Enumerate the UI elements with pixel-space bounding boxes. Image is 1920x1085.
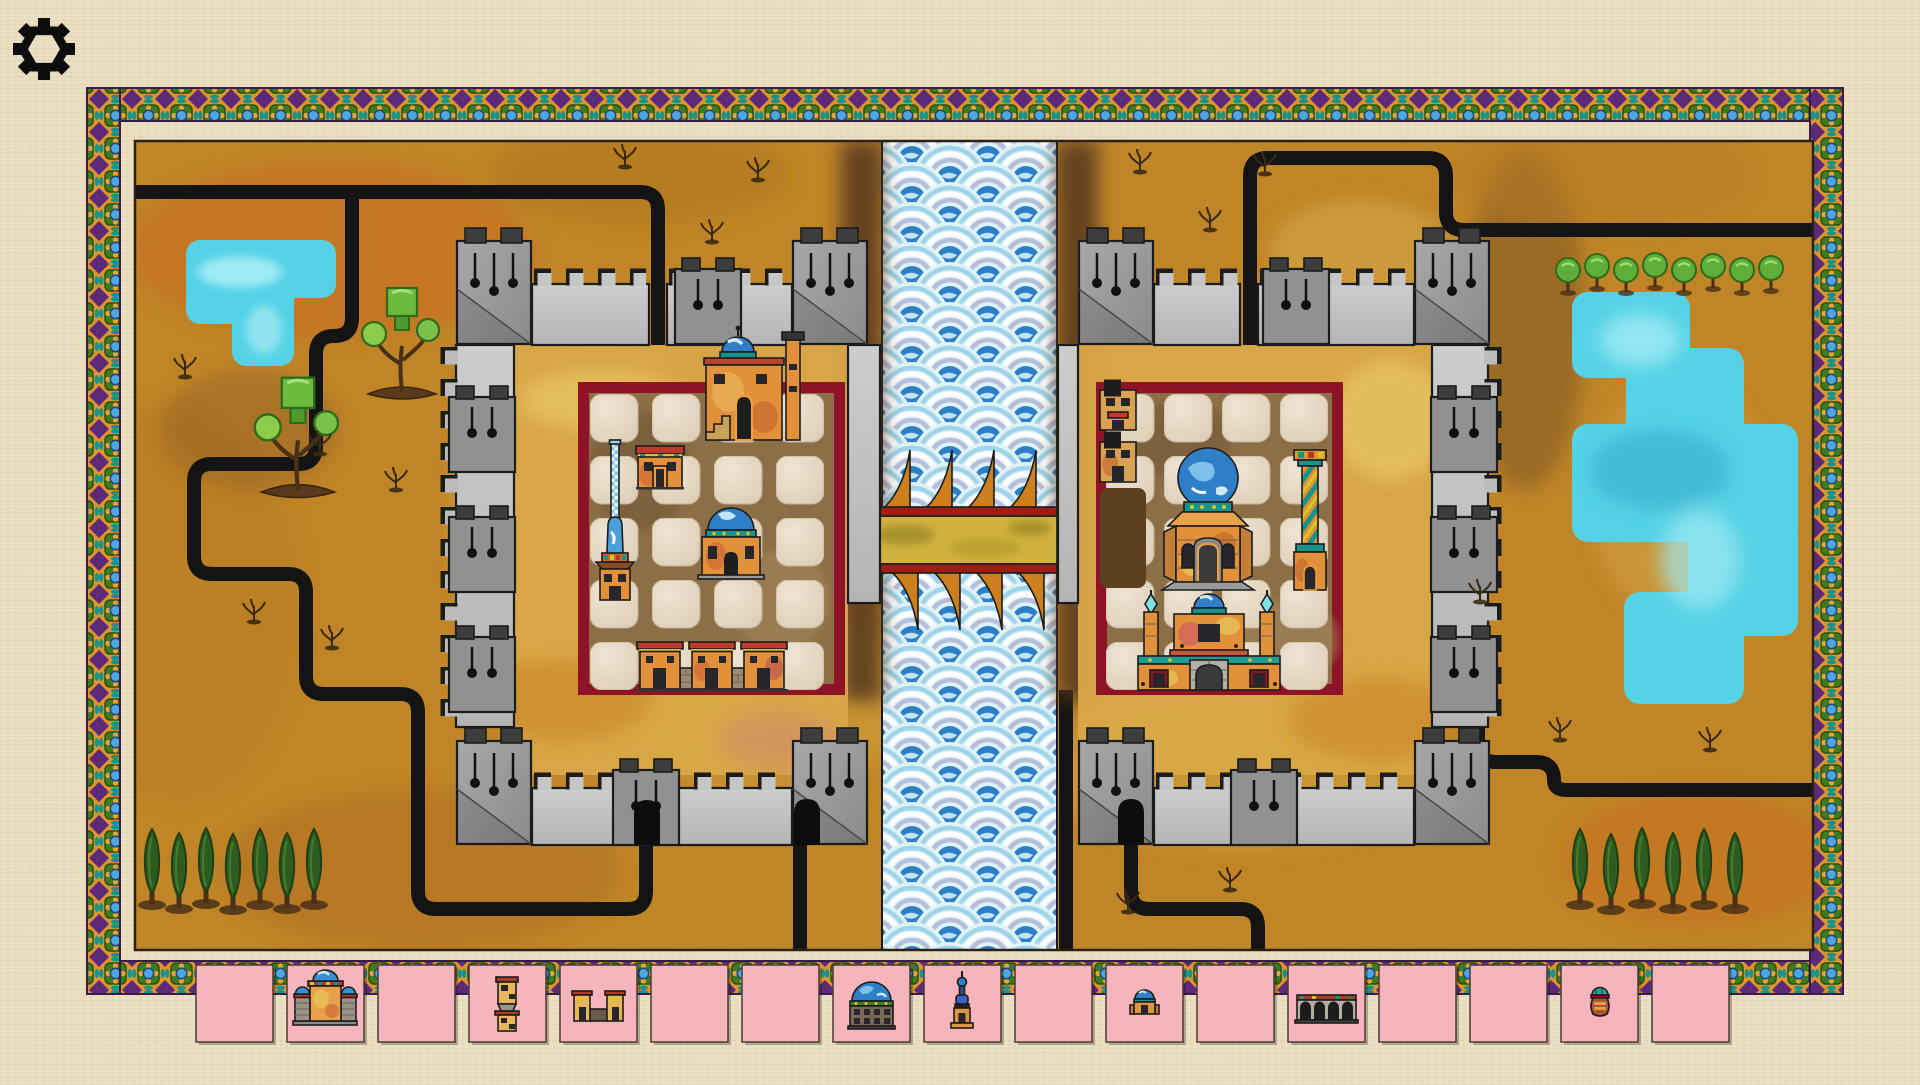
card-sprite-aqueduct [1295,995,1358,1023]
frame-right [1810,88,1843,994]
market-card-13-aqueduct[interactable] [1288,965,1368,1045]
market-card-14[interactable] [1379,965,1459,1045]
market-card-6[interactable] [651,965,731,1045]
building-small-house[interactable] [636,446,684,490]
market-card-10[interactable] [1015,965,1095,1045]
bridge-rail-bottom [860,564,1057,573]
right-city [1058,228,1497,845]
market-card-12[interactable] [1197,965,1277,1045]
market-card-11-small-domed-house[interactable] [1106,965,1186,1045]
bridge-rail-top [860,507,1057,516]
market-card-9-minaret[interactable] [924,965,1004,1045]
board-canvas [0,0,1920,1080]
market-card-16-urn[interactable] [1561,965,1641,1045]
board [60,90,1840,950]
left-city-south-east-gate [794,799,820,845]
market-card-2-domed-palace[interactable] [287,965,367,1045]
market-row [196,965,1732,1045]
game-stage [0,0,1920,1080]
market-card-4-watchtower[interactable] [469,965,549,1045]
frame-left [87,88,120,994]
right-city-south-gate [1118,799,1144,845]
left-city-south-west-gate [634,800,660,845]
building-row-houses[interactable] [636,642,788,692]
card-sprite-watchtower [495,977,519,1031]
market-card-3[interactable] [378,965,458,1045]
building-cleared-plot[interactable] [1100,488,1146,588]
market-card-7[interactable] [742,965,822,1045]
settings-gear-icon[interactable] [13,18,75,80]
market-card-5-twin-tower-gate[interactable] [560,965,640,1045]
card-sprite-urn [1591,988,1609,1017]
market-card-8-great-dome[interactable] [833,965,913,1045]
market-card-17[interactable] [1652,965,1732,1045]
market-card-15[interactable] [1470,965,1550,1045]
market-card-1[interactable] [196,965,276,1045]
frame-top [87,88,1843,121]
